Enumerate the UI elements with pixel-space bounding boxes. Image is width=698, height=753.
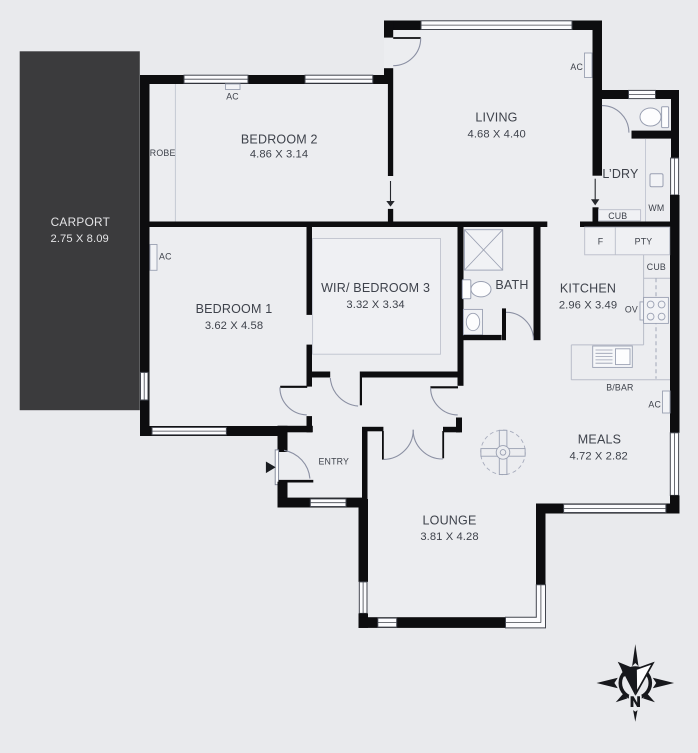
svg-text:2.75 X 8.09: 2.75 X 8.09: [51, 233, 109, 245]
svg-text:OV: OV: [625, 305, 638, 315]
svg-text:WM: WM: [648, 203, 664, 213]
svg-text:4.86 X 3.14: 4.86 X 3.14: [250, 149, 308, 161]
svg-text:4.72 X 2.82: 4.72 X 2.82: [570, 450, 628, 462]
svg-text:LOUNGE: LOUNGE: [423, 514, 477, 528]
svg-text:4.68 X 4.40: 4.68 X 4.40: [468, 128, 526, 140]
svg-text:WIR/ BEDROOM 3: WIR/ BEDROOM 3: [321, 281, 430, 295]
svg-text:CARPORT: CARPORT: [51, 215, 111, 229]
svg-text:PTY: PTY: [635, 237, 653, 247]
svg-text:BATH: BATH: [495, 278, 528, 292]
svg-text:3.62 X 4.58: 3.62 X 4.58: [205, 320, 263, 332]
svg-text:3.32 X 3.34: 3.32 X 3.34: [346, 299, 404, 311]
svg-text:B/BAR: B/BAR: [606, 383, 633, 393]
svg-text:AC: AC: [648, 400, 661, 410]
svg-text:3.81 X 4.28: 3.81 X 4.28: [420, 531, 478, 543]
svg-text:2.96 X 3.49: 2.96 X 3.49: [559, 299, 617, 311]
svg-text:CUB: CUB: [608, 211, 627, 221]
svg-text:F: F: [598, 237, 604, 247]
svg-text:KITCHEN: KITCHEN: [560, 282, 616, 296]
svg-text:CUB: CUB: [647, 262, 666, 272]
svg-text:AC: AC: [226, 92, 239, 102]
svg-text:LIVING: LIVING: [475, 111, 517, 125]
svg-text:BEDROOM 2: BEDROOM 2: [241, 133, 318, 147]
svg-text:BEDROOM 1: BEDROOM 1: [196, 302, 273, 316]
svg-text:AC: AC: [570, 62, 583, 72]
svg-text:AC: AC: [159, 252, 172, 262]
svg-text:MEALS: MEALS: [578, 433, 621, 447]
svg-text:L’DRY: L’DRY: [602, 167, 639, 181]
svg-text:ENTRY: ENTRY: [318, 457, 349, 467]
svg-text:ROBE: ROBE: [150, 148, 176, 158]
